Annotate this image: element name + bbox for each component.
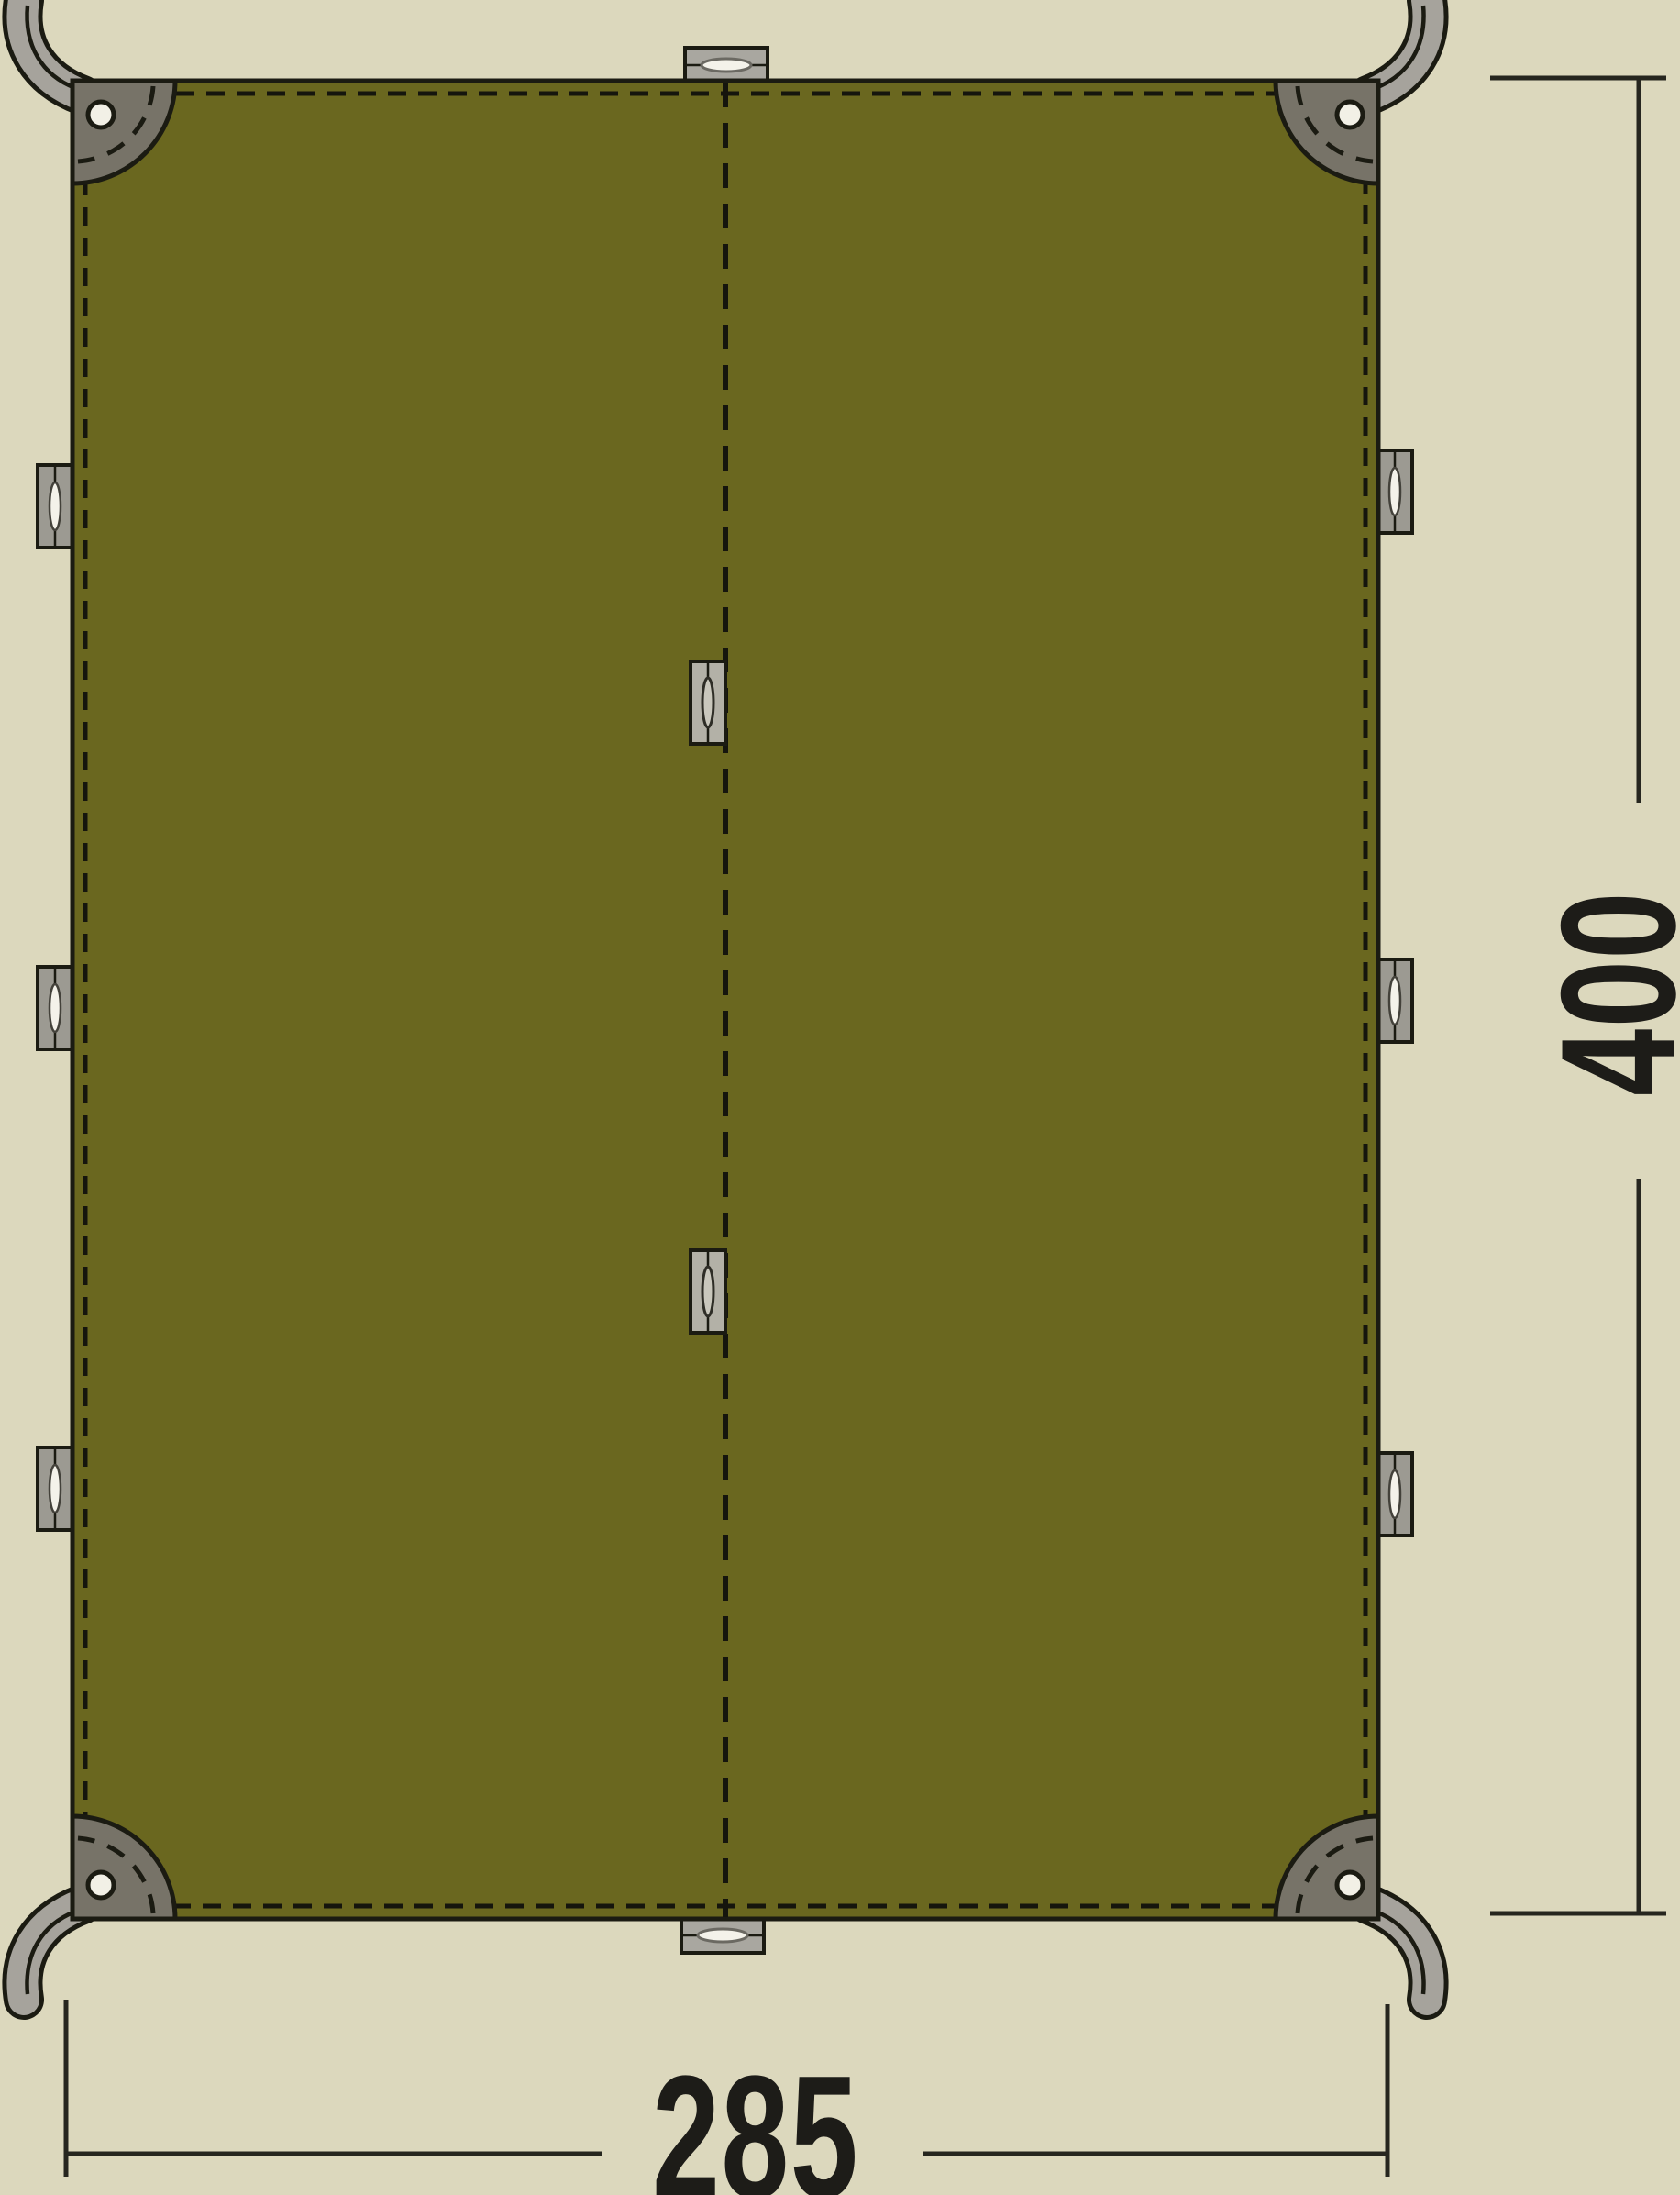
tarp-diagram-canvas xyxy=(0,0,1680,2195)
left-edge-loop-3 xyxy=(38,1447,72,1530)
bottom-edge-loop xyxy=(681,1918,764,1953)
height-dimension-label: 400 xyxy=(1537,891,1680,1096)
tarp-fabric xyxy=(72,81,1378,1919)
center-seam-loop-1 xyxy=(691,661,725,744)
right-edge-loop-3 xyxy=(1377,1453,1412,1535)
width-dimension-label: 285 xyxy=(652,2050,859,2195)
left-edge-loop-1 xyxy=(38,465,72,548)
left-edge-loop-2 xyxy=(38,967,72,1049)
top-edge-loop xyxy=(685,48,768,83)
right-edge-loop-1 xyxy=(1377,450,1412,533)
diagram-stage: 400 285 xyxy=(0,0,1680,2195)
center-seam-loop-2 xyxy=(691,1250,725,1333)
right-edge-loop-2 xyxy=(1377,959,1412,1042)
